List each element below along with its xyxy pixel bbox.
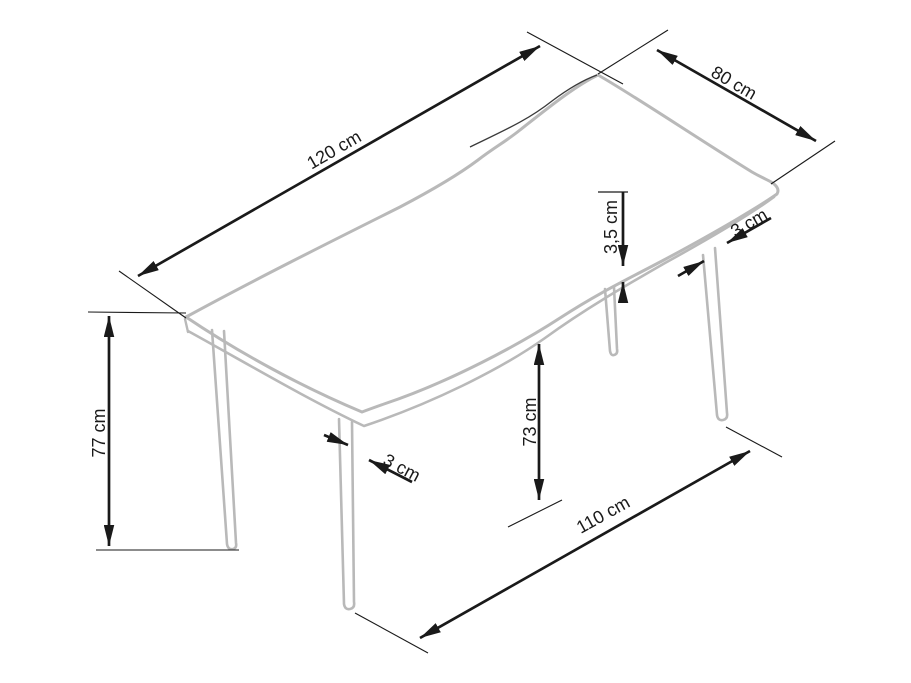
dim-leg-span-arrow (420, 451, 750, 638)
diagram-canvas: 120 cm 80 cm 3,5 cm 3 cm 77 cm 3 cm 73 c… (0, 0, 911, 683)
tabletop-underside-edge (188, 197, 774, 426)
label-right-leg-width: 3 cm (727, 204, 771, 241)
label-underside-height: 73 cm (520, 397, 540, 446)
dim-right-leg-arrow-a (678, 261, 704, 276)
dim-underside-height-floor-tick (508, 500, 562, 527)
label-total-height: 77 cm (89, 408, 109, 457)
furniture-dimension-diagram: 120 cm 80 cm 3,5 cm 3 cm 77 cm 3 cm 73 c… (0, 0, 911, 683)
tabletop-left-corner-edge (185, 319, 188, 332)
dimension-labels: 120 cm 80 cm 3,5 cm 3 cm 77 cm 3 cm 73 c… (89, 62, 771, 538)
label-top-thickness: 3,5 cm (601, 200, 621, 254)
leg-back-right (605, 287, 617, 355)
leg-back-left (212, 330, 236, 549)
dim-top-width-ext-bottom (771, 141, 835, 184)
dim-top-length-ext-left (119, 271, 186, 318)
dim-leg-span-ext-right (726, 427, 782, 457)
label-top-width: 80 cm (708, 62, 760, 104)
dim-leg-span-ext-left (355, 613, 428, 653)
dim-top-length-ext-right (527, 32, 623, 84)
dim-leg-span (355, 427, 782, 653)
label-top-length: 120 cm (303, 126, 364, 173)
dim-top-width (598, 30, 835, 184)
dim-top-width-ext-top (598, 30, 668, 74)
label-front-leg-width: 3 cm (380, 450, 424, 486)
tabletop-top-outline (186, 75, 778, 412)
leg-front (339, 419, 354, 609)
label-leg-span: 110 cm (573, 492, 633, 537)
leg-right (703, 248, 727, 420)
dim-top-length (119, 32, 623, 318)
dim-total-height-tick-top (88, 312, 186, 313)
table-drawing (185, 75, 778, 609)
dim-front-leg-arrow-a (324, 435, 348, 445)
dim-top-length-arrow (138, 46, 540, 276)
